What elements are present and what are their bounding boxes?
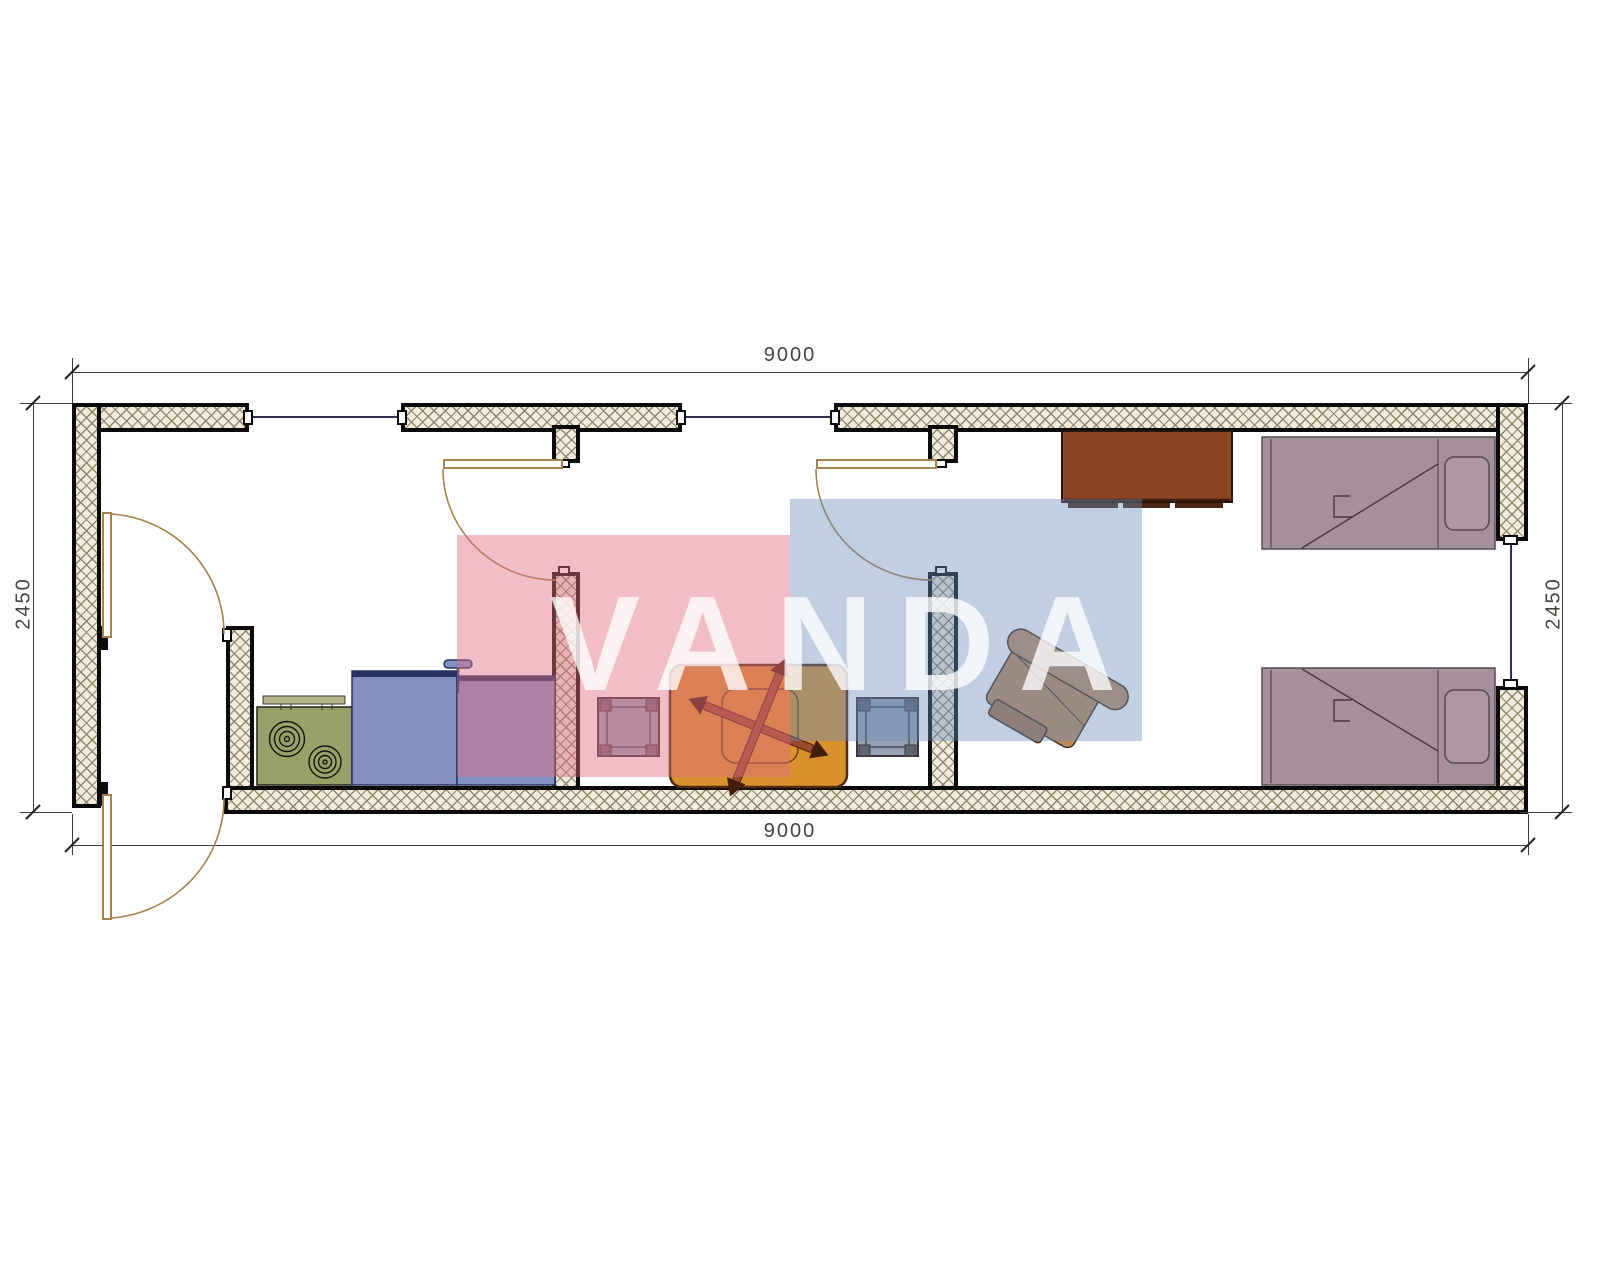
bed-bottom <box>1262 668 1495 785</box>
bed-top <box>1262 437 1495 549</box>
stove <box>257 707 352 785</box>
sink-cabinet <box>352 671 457 785</box>
floor-plan-canvas: 9000 9000 2450 2450 <box>0 0 1600 1280</box>
pillow <box>1445 457 1489 530</box>
wardrobe <box>1062 431 1232 508</box>
door-arc-entrance <box>112 798 224 918</box>
watermark-text: VANDA <box>540 575 1150 715</box>
pillow <box>1445 690 1489 763</box>
door-arc-vestibule <box>112 514 224 634</box>
